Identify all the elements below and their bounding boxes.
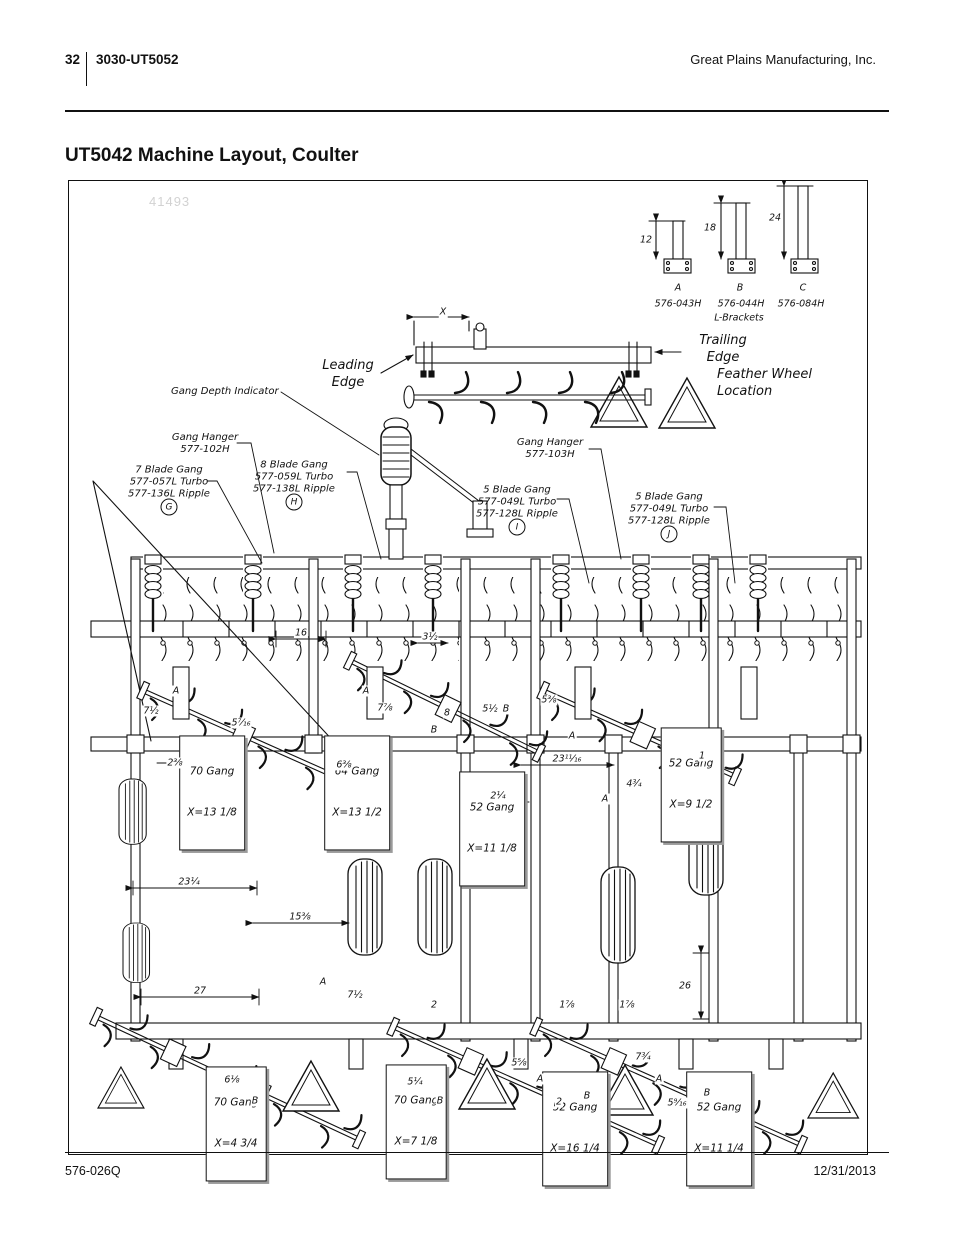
hitch-lug (474, 329, 486, 349)
gang-box-name: 70 Gang (187, 766, 237, 780)
footer-rule (65, 1152, 889, 1153)
gauge-wheel (119, 779, 146, 844)
footer-date: 12/31/2013 (813, 1164, 876, 1178)
dim-label: A (536, 1074, 545, 1085)
gauge-wheel (348, 859, 382, 955)
gang-box-x: X=4 3/4 (214, 1138, 259, 1152)
feather-wheel-triangle (98, 1067, 144, 1108)
gang-box-x: X=11 1/8 (467, 843, 517, 857)
leading-edge-arrow (381, 355, 413, 373)
gang-box-52-161_4: 52 Gang X=16 1/4 (542, 1071, 608, 1186)
dim-label: 7½ (142, 706, 159, 717)
dim-label: 15⅜ (288, 912, 311, 923)
dim-label: 5⁹⁄₁₆ (666, 1098, 687, 1109)
dim-label: 2¼ (489, 791, 506, 802)
dim-label: A (568, 731, 577, 742)
machine-drawing (69, 181, 867, 1154)
dim-label: B (430, 725, 439, 736)
gang-box-name: 52 Gang (467, 802, 517, 816)
manual-page: 32 3030-UT5052 Great Plains Manufacturin… (0, 0, 954, 1235)
gang-box-name: 70 Gang (394, 1095, 439, 1109)
dim-label: 6⅛ (223, 1075, 240, 1086)
label-gang-hanger-right: Gang Hanger 577-103H (517, 437, 583, 461)
dim-label: B (583, 1091, 592, 1102)
feather-wheel-triangle (659, 378, 715, 428)
dim-label: B (436, 1096, 445, 1107)
label-7-blade-gang: 7 Blade Gang 577-057L Turbo 577-136L Rip… (128, 464, 210, 499)
dim-label: 16 (294, 628, 308, 639)
ref-circle-h: H (286, 494, 303, 511)
dim-label: 6⅜ (335, 760, 352, 771)
header-company: Great Plains Manufacturing, Inc. (690, 52, 876, 67)
mid-rail (91, 621, 861, 637)
dim-label: 1 (698, 751, 706, 762)
label-leading-edge: Leading Edge (322, 358, 374, 392)
bracket-c-height: 24 (768, 213, 782, 224)
bracket-b-letter: B (736, 283, 745, 294)
gauge-wheel (418, 859, 452, 955)
bracket-c-part: 576-084H (777, 299, 826, 310)
dim-label: 5½ (481, 704, 498, 715)
ref-circle-j: J (661, 526, 678, 543)
page-title: UT5042 Machine Layout, Coulter (65, 145, 359, 167)
l-bracket-c (777, 186, 818, 273)
gang-box-x: X=13 1/8 (187, 807, 237, 821)
bracket-b-part: 576-044H (717, 299, 766, 310)
dim-label: 1⅞ (558, 1000, 575, 1011)
gang-box-70-131_8: 70 Gang X=13 1/8 (179, 735, 245, 850)
dim-label: 1⅞ (618, 1000, 635, 1011)
gang-box-x: X=16 1/4 (550, 1143, 600, 1157)
gang-box-name: 52 Gang (694, 1102, 744, 1116)
figure-machine-layout: 41493 Leading Edge Trailing Edge Feather… (68, 180, 868, 1155)
ref-circle-g: G (161, 499, 178, 516)
gang-box-x: X=7 1/8 (394, 1136, 439, 1150)
dim-label: A (601, 794, 610, 805)
dim-label: A (319, 977, 328, 988)
dim-label: 4¾ (625, 779, 642, 790)
bracket-b-height: 18 (703, 223, 717, 234)
dim-label: 3½ (421, 632, 438, 643)
brackets-caption: L-Brackets (713, 313, 764, 324)
gang-box-x: X=9 1/2 (669, 799, 714, 813)
gang-box-x: X=11 1/4 (694, 1143, 744, 1157)
figure-watermark: 41493 (149, 194, 190, 209)
frame-vertical (847, 559, 856, 1041)
label-5-blade-gang-right: 5 Blade Gang 577-049L Turbo 577-128L Rip… (628, 491, 710, 526)
dim-label: A (655, 1074, 664, 1085)
feather-wheel-triangle (591, 377, 647, 427)
ref-circle-i: I (509, 519, 526, 536)
dim-label: B (502, 704, 511, 715)
coulter-blade-row-right (469, 577, 853, 661)
dim-label: B (251, 1096, 260, 1107)
gang-box-64-131_2: 64 Gang X=13 1/2 (324, 735, 390, 850)
label-trailing-edge: Trailing Edge (699, 333, 747, 367)
label-gang-hanger-left: Gang Hanger 577-102H (172, 432, 238, 456)
header-doc-id: 3030-UT5052 (96, 52, 179, 67)
dim-label: 5¼ (406, 1077, 423, 1088)
dim-label: 26 (678, 981, 692, 992)
bracket-a-height: 12 (639, 235, 653, 246)
rockshaft-bar (416, 347, 651, 363)
gang-box-52-111_8: 52 Gang X=11 1/8 (459, 771, 525, 886)
frame-vertical (309, 559, 318, 753)
frame-vertical (794, 737, 803, 1041)
coulter-blade-row-left (135, 577, 459, 661)
dim-label: 7⅞ (376, 703, 393, 714)
bracket-a-part: 576-043H (654, 299, 703, 310)
depth-indicator-body (381, 427, 411, 485)
label-gang-depth-indicator: Gang Depth Indicator (171, 386, 279, 398)
footer-doc-code: 576-026Q (65, 1164, 121, 1178)
dim-label: B (703, 1088, 712, 1099)
dim-label: 27 (193, 986, 207, 997)
bracket-c-letter: C (799, 283, 808, 294)
gang-box-52-91_2: 52 Gang X=9 1/2 (661, 727, 722, 842)
gang-box-name: 52 Gang (669, 758, 714, 772)
dim-label: 2 (430, 1000, 438, 1011)
l-bracket-b (714, 203, 755, 273)
label-feather-wheel: Feather Wheel Location (717, 367, 812, 401)
header-divider (86, 52, 87, 86)
dim-label: 8 (443, 708, 451, 719)
dim-label: 23¼ (177, 877, 200, 888)
feather-wheel-triangle (808, 1073, 858, 1118)
dim-label: X (439, 307, 448, 318)
dim-label: 5⁷⁄₁₆ (230, 718, 251, 729)
dim-label: 23¹¹⁄₁₆ (552, 754, 583, 765)
rear-rail (116, 1023, 861, 1039)
bracket-a-letter: A (674, 283, 683, 294)
dim-label: 2 (555, 1097, 563, 1108)
dim-label: A (172, 686, 181, 697)
page-number: 32 (65, 52, 80, 67)
gang-box-x: X=13 1/2 (332, 807, 382, 821)
l-bracket-a (649, 221, 691, 273)
gauge-wheel (123, 923, 150, 983)
frame-vertical (531, 559, 540, 1041)
label-5-blade-gang-left: 5 Blade Gang 577-049L Turbo 577-128L Rip… (476, 484, 558, 519)
label-8-blade-gang: 8 Blade Gang 577-059L Turbo 577-138L Rip… (253, 459, 335, 494)
dim-label: 7¾ (634, 1052, 651, 1063)
dim-label: 2⅜ (166, 758, 183, 769)
dim-label: A (362, 686, 371, 697)
feather-wheel-triangle (283, 1061, 339, 1111)
gauge-wheel (601, 867, 635, 963)
dim-label: 5⅝ (510, 1058, 527, 1069)
dim-label: 7½ (346, 990, 363, 1001)
header-rule (65, 110, 889, 112)
dim-label: 5⅜ (540, 695, 557, 706)
gang-box-52-111_4: 52 Gang X=11 1/4 (686, 1071, 752, 1186)
